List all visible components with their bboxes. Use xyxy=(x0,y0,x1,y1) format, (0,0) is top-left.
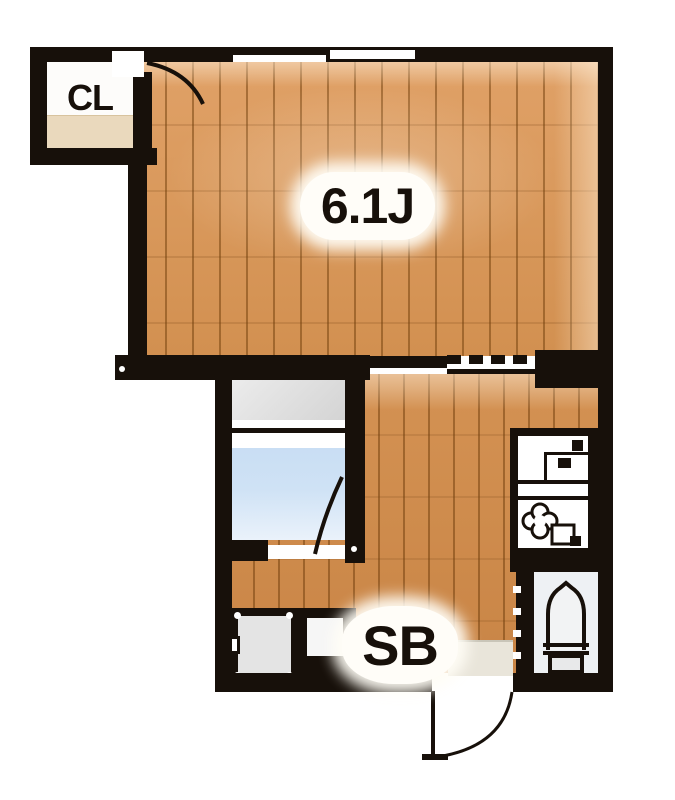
closet-label: CL xyxy=(50,76,130,120)
floor-plan: CL 6.1J SB xyxy=(0,0,675,800)
closet-door-arc xyxy=(147,63,203,104)
shoe-box-label: SB xyxy=(342,606,458,684)
door-arcs xyxy=(0,0,675,800)
bathroom-door-arc xyxy=(315,477,342,554)
main-room-label: 6.1J xyxy=(300,172,435,240)
entrance-door-arc xyxy=(437,692,512,757)
